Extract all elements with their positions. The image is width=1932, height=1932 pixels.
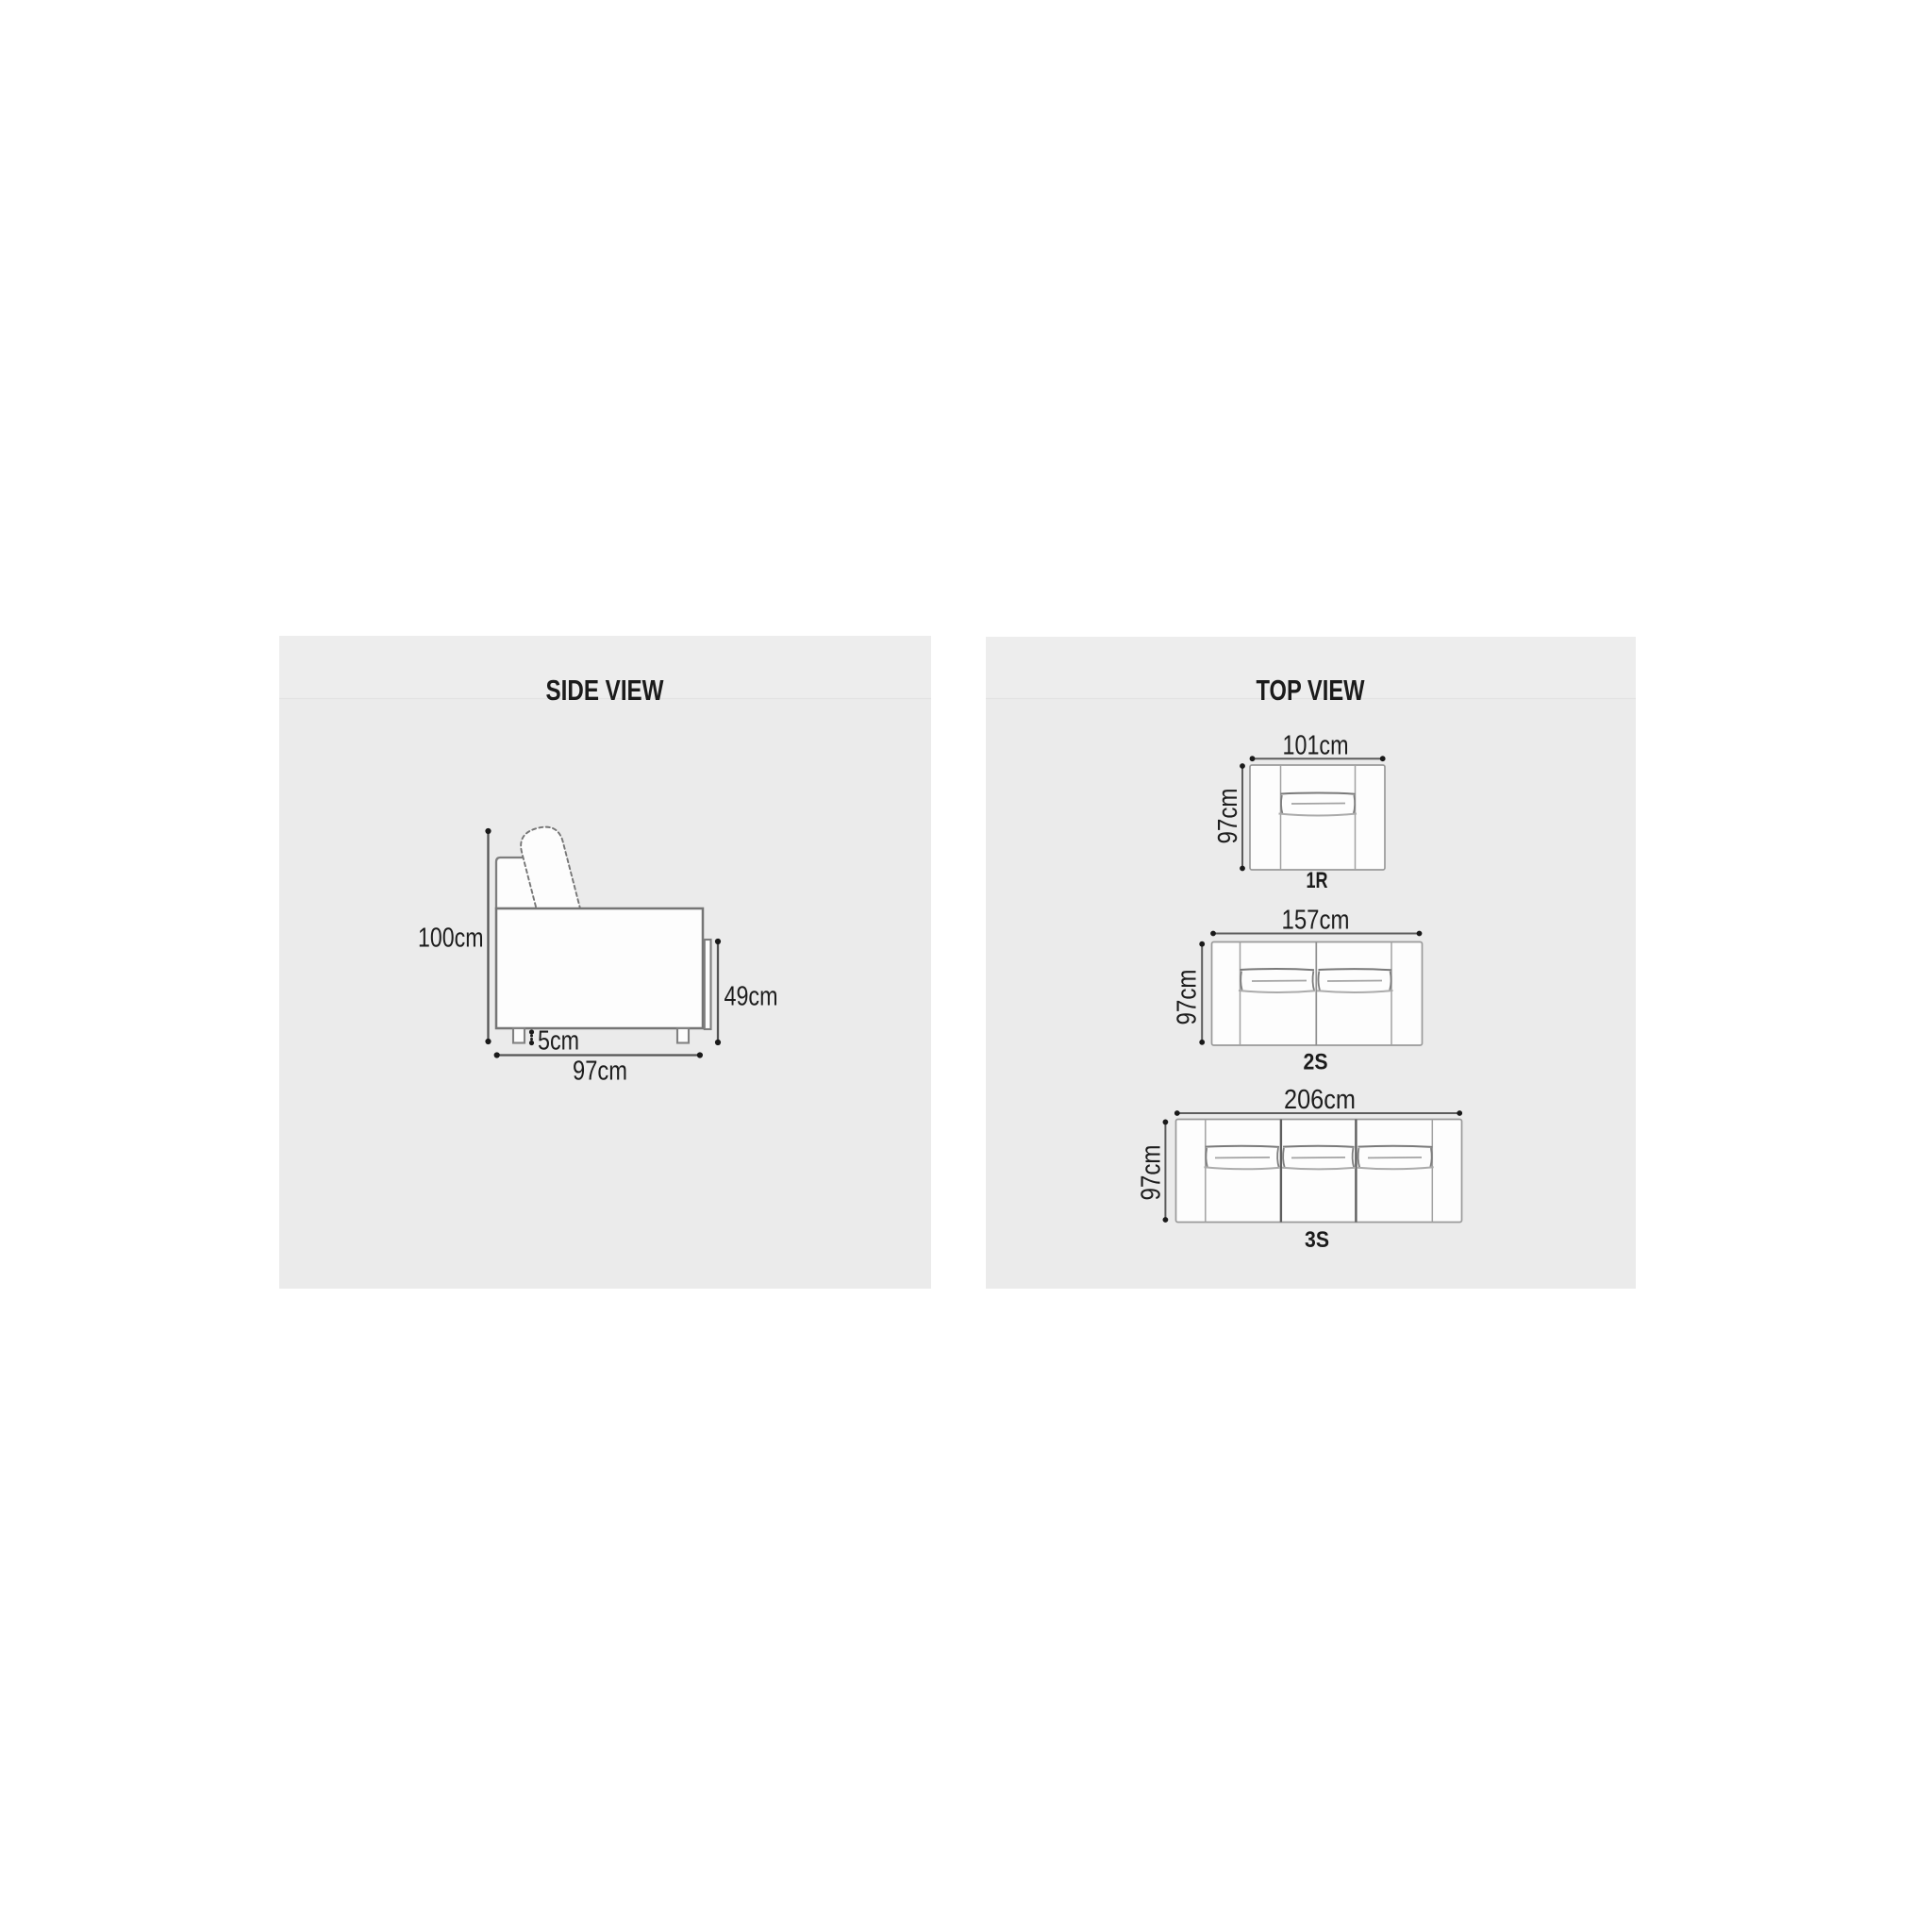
svg-text:3S: 3S — [1305, 1227, 1329, 1253]
svg-text:5cm: 5cm — [538, 1026, 579, 1057]
svg-text:TOP VIEW: TOP VIEW — [1257, 675, 1365, 707]
svg-text:SIDE VIEW: SIDE VIEW — [546, 675, 664, 707]
svg-text:100cm: 100cm — [418, 924, 484, 954]
svg-text:101cm: 101cm — [1283, 731, 1349, 761]
svg-text:97cm: 97cm — [1173, 970, 1203, 1025]
svg-text:157cm: 157cm — [1282, 906, 1350, 936]
svg-text:49cm: 49cm — [724, 982, 778, 1012]
svg-text:97cm: 97cm — [573, 1057, 627, 1087]
svg-text:97cm: 97cm — [1137, 1145, 1167, 1201]
svg-text:97cm: 97cm — [1213, 789, 1243, 844]
svg-text:2S: 2S — [1304, 1050, 1328, 1075]
svg-text:206cm: 206cm — [1284, 1085, 1356, 1115]
svg-text:1R: 1R — [1307, 868, 1328, 893]
